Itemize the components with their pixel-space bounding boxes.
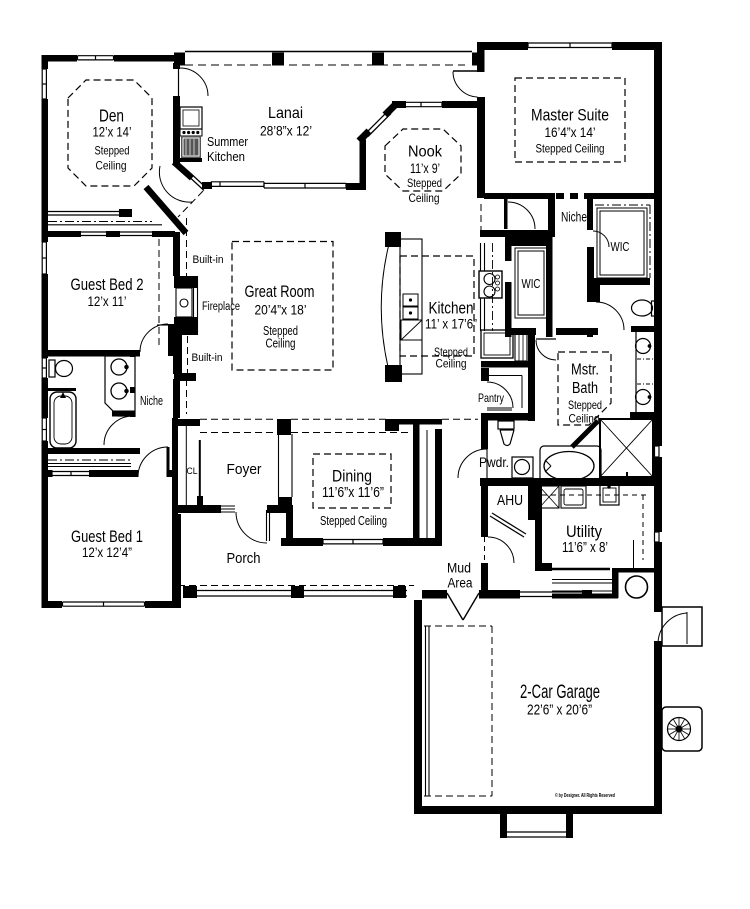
svg-text:Niche: Niche — [561, 209, 587, 225]
svg-text:Niche: Niche — [140, 393, 163, 408]
svg-text:Stepped Ceiling: Stepped Ceiling — [536, 142, 605, 156]
svg-text:Stepped: Stepped — [568, 398, 602, 412]
svg-text:Built-in: Built-in — [193, 254, 224, 266]
svg-text:WIC: WIC — [522, 277, 541, 291]
svg-text:© by Designer. All Rights Rese: © by Designer. All Rights Reserved — [555, 792, 615, 799]
svg-text:Stepped: Stepped — [407, 176, 442, 190]
svg-text:Pwdr.: Pwdr. — [479, 454, 509, 470]
svg-text:Porch: Porch — [227, 550, 261, 567]
svg-text:2-Car Garage: 2-Car Garage — [520, 682, 600, 703]
svg-text:Stepped: Stepped — [95, 144, 130, 158]
svg-text:22’6” x 20’6”: 22’6” x 20’6” — [527, 702, 592, 719]
svg-text:Fireplace: Fireplace — [202, 301, 240, 313]
svg-text:20’4”x 18’: 20’4”x 18’ — [255, 302, 307, 318]
svg-text:Ceiling: Ceiling — [96, 159, 127, 173]
svg-text:Ceiling: Ceiling — [409, 191, 440, 205]
svg-text:Pantry: Pantry — [478, 391, 504, 405]
svg-text:Foyer: Foyer — [227, 462, 262, 478]
svg-text:Stepped Ceiling: Stepped Ceiling — [320, 514, 387, 528]
svg-text:Nook: Nook — [408, 144, 442, 161]
svg-text:12’x 14’: 12’x 14’ — [93, 125, 132, 140]
svg-text:Mstr.: Mstr. — [571, 362, 599, 379]
svg-text:11’x 9’: 11’x 9’ — [410, 161, 440, 176]
svg-text:11’ x 17’6”: 11’ x 17’6” — [425, 316, 477, 332]
svg-text:11’6”x 11’6”: 11’6”x 11’6” — [322, 485, 384, 501]
svg-text:Ceiling: Ceiling — [266, 337, 296, 351]
svg-text:Summer: Summer — [207, 134, 249, 149]
svg-text:Area: Area — [448, 576, 473, 591]
svg-text:Built-in: Built-in — [192, 352, 223, 364]
svg-text:12’x 12’4”: 12’x 12’4” — [82, 544, 132, 560]
svg-text:AHU: AHU — [497, 493, 523, 509]
svg-text:CL: CL — [187, 466, 198, 476]
svg-text:16’4”x 14’: 16’4”x 14’ — [545, 124, 596, 140]
svg-text:Bath: Bath — [572, 380, 598, 397]
svg-text:12’x 11’: 12’x 11’ — [88, 293, 127, 309]
svg-text:11’6” x 8’: 11’6” x 8’ — [562, 540, 608, 556]
svg-text:Utility: Utility — [566, 523, 603, 541]
svg-text:Ceiling: Ceiling — [436, 357, 467, 371]
svg-text:Great Room: Great Room — [245, 282, 315, 301]
svg-text:Kitchen: Kitchen — [207, 149, 245, 164]
svg-text:Mud: Mud — [447, 561, 471, 576]
svg-text:28’8”x 12’: 28’8”x 12’ — [260, 123, 312, 139]
svg-text:Master Suite: Master Suite — [531, 106, 609, 125]
svg-text:Den: Den — [99, 106, 124, 126]
svg-text:Guest Bed 2: Guest Bed 2 — [71, 275, 144, 294]
svg-text:Lanai: Lanai — [268, 105, 303, 122]
svg-text:WIC: WIC — [611, 240, 630, 254]
svg-text:Dining: Dining — [332, 468, 372, 486]
svg-text:Ceiling: Ceiling — [569, 412, 600, 426]
